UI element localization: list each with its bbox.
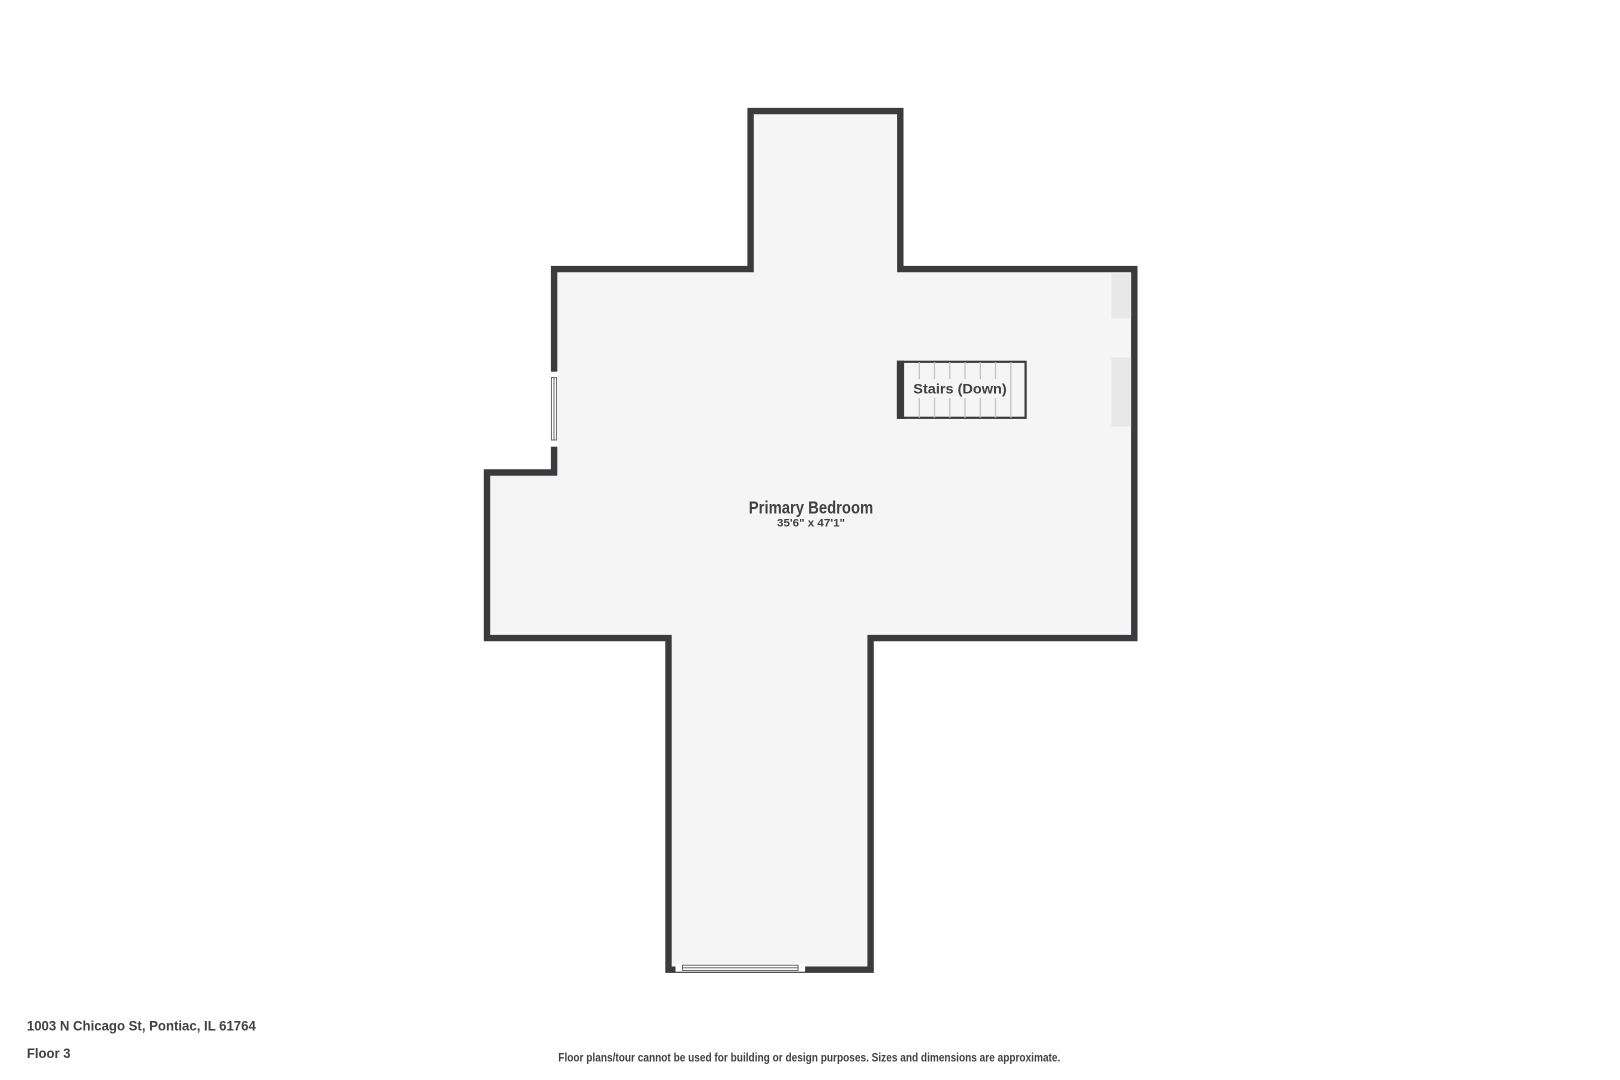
svg-text:Primary Bedroom: Primary Bedroom	[749, 497, 873, 517]
svg-text:1003 N Chicago St, Pontiac, IL: 1003 N Chicago St, Pontiac, IL 61764	[27, 1018, 256, 1033]
svg-text:Floor plans/tour cannot be use: Floor plans/tour cannot be used for buil…	[558, 1051, 1060, 1065]
svg-text:Stairs (Down): Stairs (Down)	[913, 381, 1006, 396]
svg-text:Floor 3: Floor 3	[27, 1046, 71, 1061]
svg-text:35'6" x 47'1": 35'6" x 47'1"	[777, 518, 845, 530]
